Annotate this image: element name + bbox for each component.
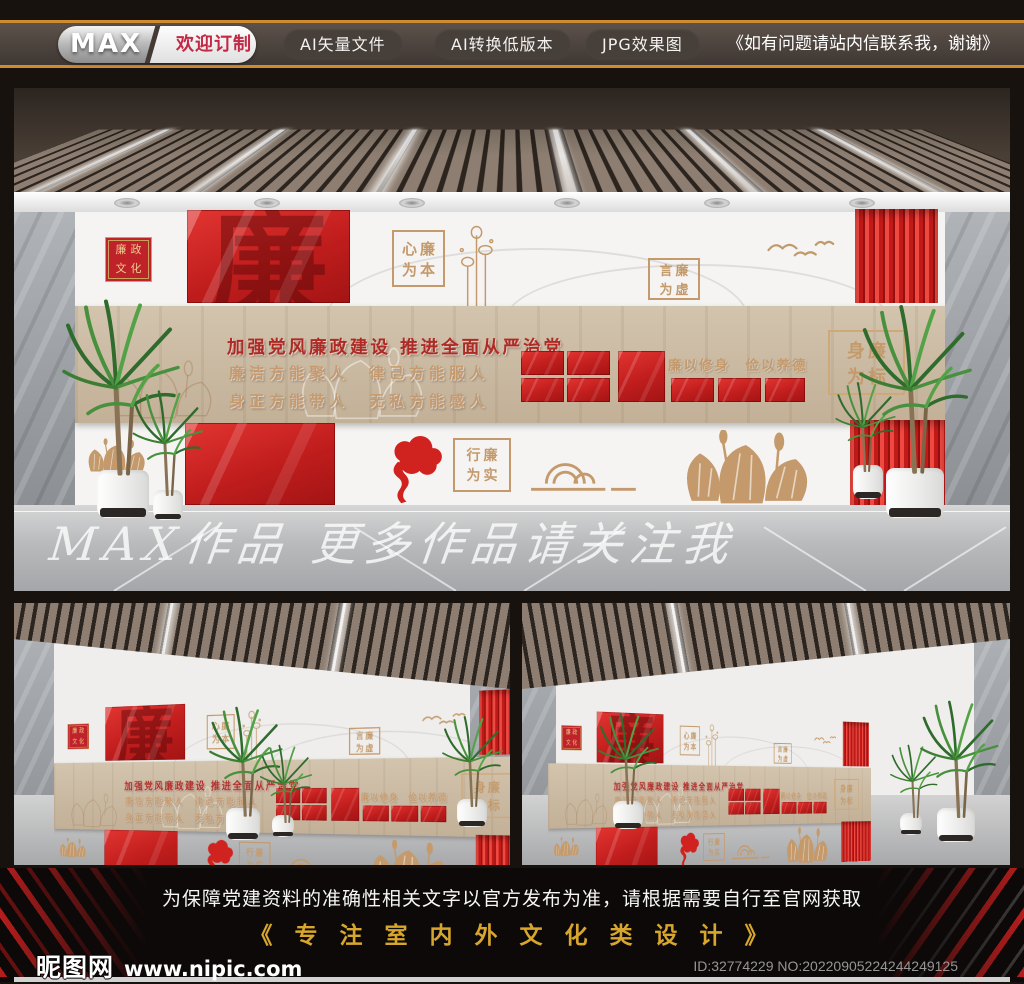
potted-plant [259,743,314,823]
glass-panel-cell [421,806,447,822]
glass-panel-cell [728,802,744,814]
gold-cloud-motif [278,853,344,865]
culture-wall: 廉政 文化 廉 心廉 为本 言廉 为虚 [548,708,871,865]
frame-text: 心廉 [394,238,443,259]
potted-plant [920,698,1000,818]
glass-caption: 廉以修身 俭以养德 [668,354,808,374]
lotus-solid-motif [778,826,838,864]
brand-badge[interactable]: MAX 欢迎订制 [58,26,256,63]
frame-text: 行廉 [455,445,509,465]
badge-line1: 廉政 [68,725,89,736]
glass-panel-cell [745,789,760,801]
glass-panel-cell [763,789,779,814]
lotus-line-motif [704,724,721,766]
gold-cloud-motif [730,840,771,861]
red-glass-panel-lower [104,830,177,865]
frame-xinglian-weishi: 行廉 为实 [703,833,725,861]
red-slat-panel-upper [855,209,938,303]
ceiling-slats [14,130,1010,192]
glass-panel-cell [331,788,359,821]
glass-panel-cell [782,802,797,814]
lotus-solid-motif [58,830,90,865]
glass-panel-cell [391,806,418,822]
gold-cloud-motif [525,455,640,495]
ceiling-light-strip [14,130,170,192]
downlight [114,198,140,208]
badge-line2: 文化 [562,737,582,748]
badge-line2: 文化 [106,259,151,278]
frame-text: 身廉 [835,782,858,794]
glass-panel-cell [745,802,760,814]
frame-shenlian-weibiao: 身廉 为标 [834,779,859,810]
brand-tagline: 欢迎订制 [162,26,256,63]
potted-plant [126,388,211,496]
red-glass-panel-lower [596,827,658,865]
lotus-solid-motif [356,839,469,865]
downlight [704,198,730,208]
potted-plant [598,708,660,808]
frame-text: 为实 [704,847,724,858]
frame-text: 为虚 [774,753,791,763]
lian-character: 廉 [209,210,327,303]
frame-text: 言廉 [774,744,791,754]
glass-caption: 廉以修身 俭以养德 [361,790,448,803]
red-slat-panel-lower [841,821,871,862]
glass-panel-cell [728,789,744,801]
frame-text: 为实 [240,858,269,865]
red-glass-panel-main: 廉 [187,210,350,303]
lotus-line-motif [455,225,501,306]
frame-text: 言廉 [350,728,379,741]
red-slat-panel-upper [843,722,869,767]
topbar-note: 《如有问题请站内信联系我，谢谢》 [727,29,999,60]
glass-panel-cell [798,802,812,814]
frame-xinglian-weishi: 行廉 为实 [453,438,511,492]
ceiling-light-strip [177,130,285,192]
potted-plant [442,713,504,808]
frame-text: 行廉 [704,837,724,848]
glass-panel-cell [567,378,610,402]
frame-xinlian-weiben: 心廉 为本 [680,726,700,756]
frame-text: 行廉 [240,846,269,859]
mini-render-left: 廉政 文化 廉 心廉 为本 言廉 为虚 [14,603,510,865]
integrity-culture-badge: 廉政 文化 [67,723,89,749]
badge-line2: 文化 [68,736,89,747]
watermark-text: MAX作品 更多作品请关注我 [47,508,994,574]
frame-yanlian-weixu: 言廉 为虚 [648,258,700,300]
glass-panel-cell [765,378,805,402]
red-cloud-motif [677,832,701,865]
topbar: MAX 欢迎订制 AI矢量文件 AI转换低版本 JPG效果图 《如有问题请站内信… [0,0,1024,88]
ceiling [14,88,1010,192]
downlight [254,198,280,208]
lian-character: 廉 [116,704,174,761]
potted-plant [859,300,974,475]
lotus-solid-motif [552,829,583,864]
badge-line1: 廉政 [106,240,151,259]
lotus-outline-motif [67,792,123,828]
glass-panel-cell [671,378,714,402]
glass-caption: 廉以修身 俭以养德 [781,790,828,800]
glass-panel-cell [618,351,665,402]
mini-render-right: 廉政 文化 廉 心廉 为本 言廉 为虚 [522,603,1010,865]
birds-motif [765,235,835,260]
red-cloud-motif [385,436,447,505]
footer-slogan: 《 专 注 室 内 外 文 化 类 设 计 》 [0,916,1024,950]
frame-text: 为实 [455,465,509,485]
footer: 为保障党建资料的准确性相关文字以官方发布为准，请根据需要自行至官网获取 《 专 … [0,868,1024,982]
frame-xinglian-weishi: 行廉 为实 [239,842,271,865]
site-logo: 昵图网www.nipic.com [36,948,302,984]
ceiling-light-strip [686,130,770,192]
site-url: www.nipic.com [124,957,302,981]
glass-panel-cell [521,378,564,402]
frame-text: 心廉 [681,729,700,740]
glass-panel-cell [521,351,564,375]
badge-line1: 廉政 [562,727,582,738]
frame-text: 言廉 [650,260,698,279]
wall-title: 加强党风廉政建设 推进全面从严治党 [227,334,564,359]
main-render-image: 廉政 文化 廉 心廉 为本 言廉 为虚 [14,88,1010,591]
site-name: 昵图网 [36,953,114,982]
button-jpg-preview[interactable]: JPG效果图 [585,29,700,60]
footer-disclaimer: 为保障党建资料的准确性相关文字以官方发布为准，请根据需要自行至官网获取 [0,884,1024,911]
frame-xinlian-weiben: 心廉 为本 [392,230,445,287]
frame-yanlian-weixu: 言廉 为虚 [774,743,792,764]
integrity-culture-badge: 廉政 文化 [105,237,152,282]
frame-text: 为虚 [650,279,698,298]
ceiling-light-strip [369,130,418,192]
frame-yanlian-weixu: 言廉 为虚 [349,727,380,755]
footer-id-text: ID:32774229 NO:20220905224244249125 [693,958,958,974]
wall-slogan-line1: 廉洁方能聚人 律己方能服人 [229,362,489,383]
brand-name: MAX [58,26,154,63]
frame-text: 为标 [835,794,858,806]
glass-panel-cell [567,351,610,375]
frame-text: 为本 [681,740,700,751]
button-ai-vector-file[interactable]: AI矢量文件 [283,29,403,60]
ceiling-light-strip [553,130,578,192]
glass-panel-cell [718,378,761,402]
glass-panel-cell [813,802,826,814]
button-ai-low-version[interactable]: AI转换低版本 [434,29,571,60]
ceiling-light-strip [818,130,962,192]
glass-panel-cell [363,805,389,821]
red-glass-panel-main: 廉 [105,704,185,761]
downlight [849,198,875,208]
wall-slogan-line2: 身正方能带人 无私方能感人 [229,390,489,411]
frame-text: 为虚 [350,741,379,754]
frame-text: 为本 [394,259,443,280]
birds-motif [813,733,836,746]
red-slat-panel-lower [476,835,510,865]
downlight [554,198,580,208]
downlight [399,198,425,208]
lotus-solid-motif [660,430,840,505]
red-cloud-motif [203,839,236,865]
integrity-culture-badge: 廉政 文化 [561,725,581,750]
